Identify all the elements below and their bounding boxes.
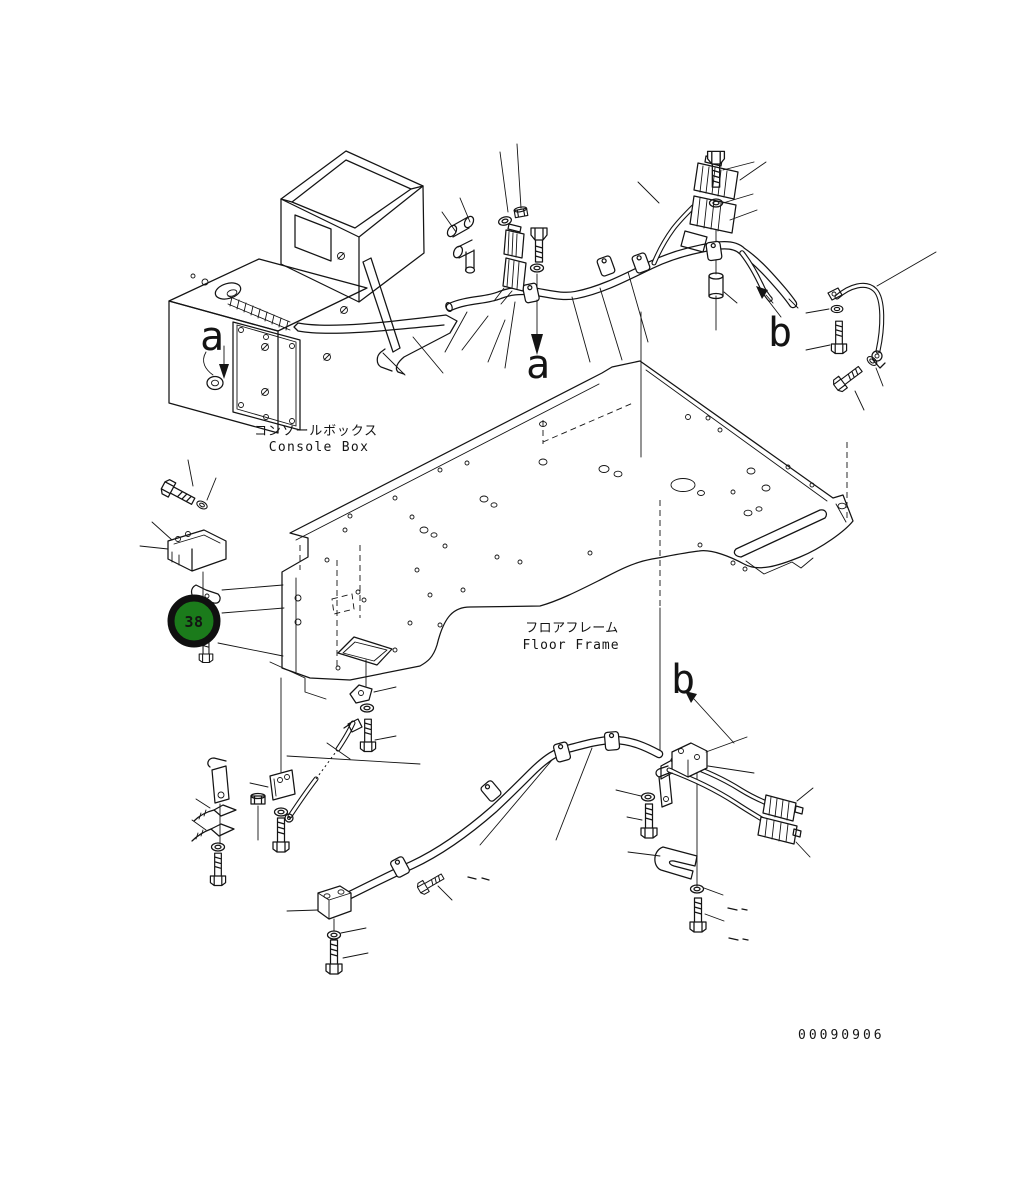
bolt: [159, 478, 197, 508]
console-box: [169, 151, 457, 433]
clamp-column: [350, 685, 376, 752]
arrow-a-console: [219, 364, 229, 379]
floor-frame-label-en: Floor Frame: [522, 638, 619, 653]
harness-clamp: [596, 255, 615, 277]
lower-harness: [192, 685, 803, 974]
bolt: [531, 228, 547, 262]
ground-strap: [828, 285, 885, 393]
bolt: [641, 804, 657, 838]
u-clip: [655, 847, 697, 879]
washer: [866, 355, 879, 367]
view-label-b-upper: b: [768, 310, 792, 356]
parts-diagram: コンソールボックス Console Box フロアフレーム Floor Fram…: [0, 0, 1036, 1189]
right-connectors: [758, 795, 803, 844]
harness-clamp: [604, 731, 620, 750]
terminal-block: [318, 886, 351, 919]
view-label-a-console: a: [200, 314, 224, 360]
upper-harness: [445, 151, 798, 312]
left-ground-lugs: [192, 758, 236, 886]
bolt: [831, 321, 846, 353]
view-label-a-harness: a: [526, 342, 550, 388]
drawing-number: 00090906: [798, 1028, 885, 1043]
console-box-label-en: Console Box: [269, 440, 369, 455]
center-marks: [468, 877, 748, 940]
panel-screw-icons: [239, 328, 295, 424]
washer: [196, 499, 209, 510]
mount-pad: [338, 637, 392, 665]
bolt: [326, 940, 342, 974]
parts-diagram-page: コンソールボックス Console Box フロアフレーム Floor Fram…: [0, 0, 1036, 1189]
view-label-b-lower: b: [671, 657, 695, 703]
section-lines: [220, 206, 716, 931]
screw: [416, 871, 446, 896]
bolt: [690, 898, 706, 932]
bolt: [831, 363, 864, 393]
jumper-wire: [285, 719, 362, 822]
floor-frame-label-jp: フロアフレーム: [525, 621, 618, 636]
console-box-label-jp: コンソールボックス: [254, 424, 378, 439]
washer: [831, 305, 843, 312]
washer: [531, 264, 544, 272]
harness-clamp: [706, 241, 722, 261]
balloon-number: 38: [184, 613, 203, 631]
washer: [642, 793, 655, 801]
leader-lines: [192, 144, 936, 958]
spacer: [709, 273, 723, 299]
part-balloon-38[interactable]: 38: [171, 598, 217, 644]
washer: [328, 931, 341, 939]
